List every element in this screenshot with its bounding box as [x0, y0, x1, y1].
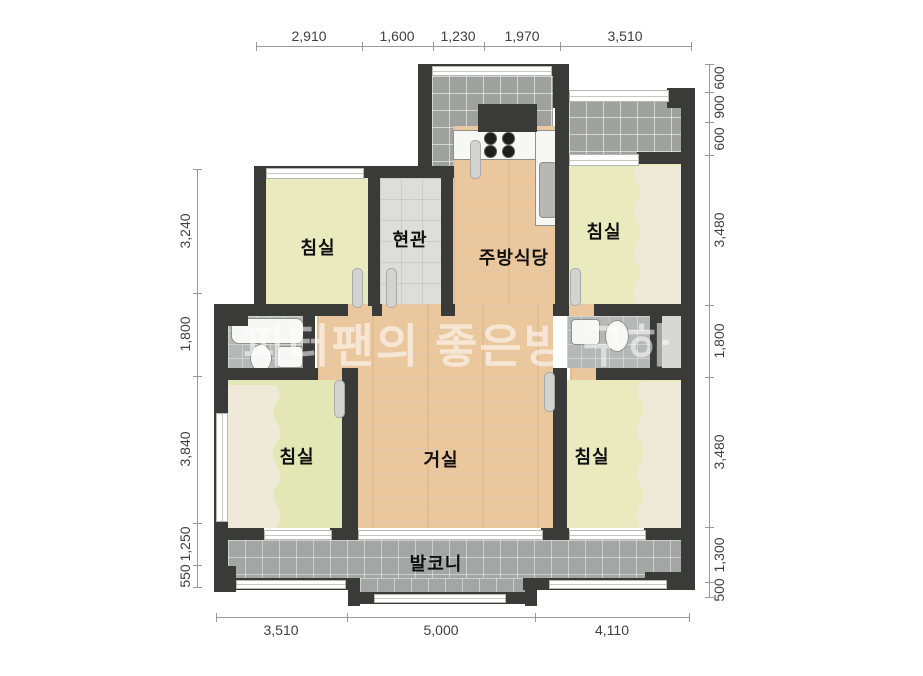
- room-label-balcony: 발코니: [410, 550, 463, 576]
- dimension-tick: [705, 377, 714, 378]
- dimension-label: 550: [177, 564, 193, 587]
- dimension-tick: [691, 42, 692, 51]
- dimension-tick: [362, 42, 363, 51]
- wall-segment: [637, 152, 683, 164]
- wall-segment: [368, 178, 380, 306]
- dimension-tick: [705, 305, 714, 306]
- room-label-entrance: 현관: [392, 226, 427, 252]
- floor-plan: 침실 현관 주방식당 침실 침실 거실 침실 발코니 피터팬의 좋은방 구하 2…: [0, 0, 923, 676]
- window: [549, 580, 667, 589]
- window: [236, 580, 346, 589]
- closet-wave: [630, 166, 644, 304]
- dimension-label: 5,000: [423, 622, 458, 638]
- room-label-bedroom-top-left: 침실: [300, 234, 335, 260]
- closet-wave: [633, 382, 647, 528]
- dimension-label: 1,250: [177, 526, 193, 561]
- dimension-line: [256, 46, 691, 47]
- window: [569, 90, 669, 102]
- dimension-label: 3,510: [607, 28, 642, 44]
- closet: [640, 166, 683, 304]
- room-label-living-room: 거실: [423, 446, 458, 472]
- room-label-bedroom-bottom-left: 침실: [279, 443, 314, 469]
- dimension-label: 3,480: [711, 212, 727, 247]
- dimension-tick: [193, 523, 202, 524]
- door-icon: [334, 380, 345, 418]
- dimension-tick: [216, 613, 217, 622]
- dimension-tick: [705, 527, 714, 528]
- room-label-bedroom-bottom-right: 침실: [574, 443, 609, 469]
- wall-segment: [254, 166, 266, 316]
- wall-segment: [644, 528, 695, 540]
- dimension-tick: [433, 42, 434, 51]
- dimension-tick: [193, 293, 202, 294]
- dimension-tick: [705, 155, 714, 156]
- closet: [228, 385, 270, 528]
- dimension-tick: [689, 613, 690, 622]
- dimension-label: 1,600: [379, 28, 414, 44]
- dimension-tick: [193, 169, 202, 170]
- wall-segment: [541, 528, 569, 540]
- dimension-label: 3,480: [711, 434, 727, 469]
- window: [264, 530, 332, 540]
- wall-segment: [555, 100, 569, 316]
- dimension-line: [216, 617, 689, 618]
- dimension-label: 1,800: [177, 316, 193, 351]
- wall-segment: [214, 528, 264, 540]
- dimension-label: 600: [711, 66, 727, 89]
- wall-segment: [478, 104, 537, 132]
- dimension-tick: [484, 42, 485, 51]
- dimension-tick: [347, 613, 348, 622]
- dimension-tick: [535, 613, 536, 622]
- top-right-balcony-floor: [569, 100, 681, 154]
- dimension-line: [709, 64, 710, 597]
- window: [432, 66, 552, 76]
- dimension-label: 3,240: [177, 213, 193, 248]
- stove-icon: [502, 145, 515, 158]
- dimension-label: 500: [711, 578, 727, 601]
- dimension-tick: [705, 122, 714, 123]
- dimension-label: 3,840: [177, 431, 193, 466]
- stove-icon: [484, 145, 497, 158]
- window: [216, 413, 228, 522]
- stove-icon: [484, 132, 497, 145]
- dimension-tick: [705, 92, 714, 93]
- dimension-label: 4,110: [595, 622, 629, 638]
- dimension-tick: [193, 376, 202, 377]
- door-icon: [470, 140, 481, 179]
- dimension-tick: [560, 42, 561, 51]
- wall-segment: [418, 64, 432, 178]
- room-label-bedroom-top-right: 침실: [586, 218, 621, 244]
- wall-segment: [681, 88, 695, 590]
- room-label-kitchen-dining: 주방식당: [479, 244, 549, 270]
- dimension-tick: [705, 64, 714, 65]
- dimension-label: 1,300: [711, 537, 727, 572]
- window: [266, 168, 364, 179]
- stove-icon: [502, 132, 515, 145]
- door-icon: [570, 268, 581, 306]
- wall-segment: [441, 178, 453, 306]
- dimension-tick: [193, 587, 202, 588]
- dimension-tick: [256, 42, 257, 51]
- door-icon: [544, 372, 555, 412]
- dimension-label: 600: [711, 127, 727, 150]
- window: [374, 594, 506, 603]
- closet: [643, 382, 683, 528]
- dimension-label: 1,230: [440, 28, 475, 44]
- dimension-line: [197, 169, 198, 587]
- dimension-label: 1,800: [711, 323, 727, 358]
- dimension-label: 1,970: [504, 28, 539, 44]
- dimension-label: 900: [711, 95, 727, 118]
- wall-segment: [553, 368, 567, 540]
- dimension-tick: [193, 565, 202, 566]
- window: [358, 530, 543, 540]
- dimension-label: 3,510: [263, 622, 298, 638]
- wall-segment: [330, 528, 358, 540]
- dimension-label: 2,910: [291, 28, 326, 44]
- watermark: 피터팬의 좋은방 구하: [243, 310, 671, 376]
- door-icon: [352, 268, 363, 308]
- window: [569, 154, 639, 166]
- door-icon: [386, 268, 397, 308]
- window: [569, 530, 646, 540]
